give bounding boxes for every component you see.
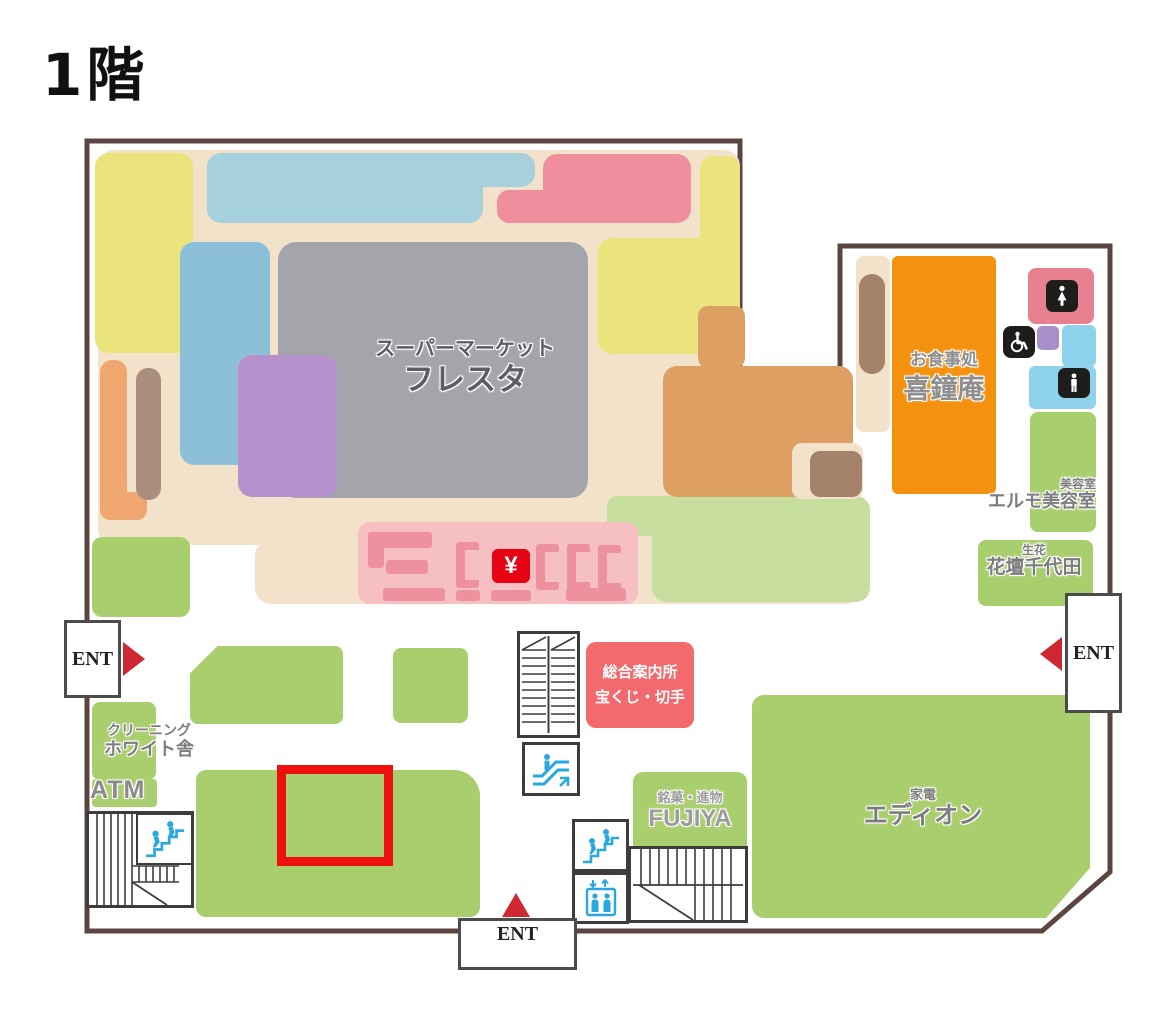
register-lane xyxy=(456,542,479,588)
area-information: 総合案内所 宝くじ・切手 xyxy=(586,642,694,728)
register-lane xyxy=(567,544,590,590)
checkout-zone: ¥ xyxy=(358,522,638,604)
dept-block-midorange-bump xyxy=(698,306,745,368)
flower-shop-label: 生花 花壇千代田 xyxy=(972,543,1096,580)
stairs-up-icon-left xyxy=(136,813,193,865)
escalator-icon xyxy=(522,742,580,796)
entrance-left-arrow-icon xyxy=(123,642,145,676)
restroom-purple-block xyxy=(1037,326,1059,350)
register-counter xyxy=(368,532,384,568)
beauty-salon-label: 美容室 エルモ美容室 xyxy=(946,477,1096,512)
dept-block-taupe-strip xyxy=(136,368,161,500)
entrance-bottom-arrow-icon xyxy=(502,893,530,917)
stairs-bottom xyxy=(628,846,748,923)
yen-service-icon: ¥ xyxy=(492,549,530,583)
zone-pale-green xyxy=(652,496,870,602)
register-counter xyxy=(383,588,445,601)
dept-block-purple xyxy=(238,355,337,497)
register-counter xyxy=(456,590,480,601)
register-lane xyxy=(598,545,621,591)
area-beauty-salon xyxy=(1030,412,1096,532)
male-restroom-icon xyxy=(1058,368,1090,398)
electronics-label: 家電 エディオン xyxy=(843,787,1003,831)
restaurant-label: お食事処 喜鐘庵 xyxy=(890,350,998,406)
register-counter xyxy=(491,590,531,601)
register-lane xyxy=(536,544,559,590)
dept-block-brown-small xyxy=(810,451,862,497)
dept-block-yellow-tall xyxy=(95,153,193,353)
entrance-right: ENT xyxy=(1065,593,1122,713)
elevator-icon xyxy=(572,872,629,924)
restroom-sky-upper xyxy=(1062,325,1096,367)
atm-label: ATM xyxy=(90,776,160,806)
wheelchair-icon xyxy=(1003,326,1035,358)
stairs-center xyxy=(517,631,580,738)
highlight-box xyxy=(277,765,393,866)
floor-map-1f: 1階 ¥ xyxy=(0,0,1166,1022)
dept-block-pink-ext xyxy=(497,190,569,223)
confectionery-label: 銘菓・進物 FUJIYA xyxy=(626,790,754,834)
dept-block-lightblue-bar xyxy=(207,153,483,223)
entrance-right-arrow-icon xyxy=(1040,637,1062,671)
shop-block-green-a xyxy=(92,537,190,617)
register-counter xyxy=(386,560,428,574)
information-label: 総合案内所 宝くじ・切手 xyxy=(595,660,685,711)
supermarket-label: スーパーマーケット フレスタ xyxy=(330,338,600,398)
cleaning-label: クリーニング ホワイト舎 xyxy=(84,722,214,760)
shop-block-green-b xyxy=(190,646,343,724)
entrance-left: ENT xyxy=(64,620,121,698)
entrance-bottom: ENT xyxy=(458,918,577,970)
shop-block-green-c xyxy=(393,648,468,723)
stairs-up-icon xyxy=(572,819,629,872)
wing-brown-pill xyxy=(859,274,885,374)
female-restroom-icon xyxy=(1046,280,1078,312)
register-counter xyxy=(566,588,626,601)
dept-block-lightblue-ext xyxy=(458,153,535,187)
